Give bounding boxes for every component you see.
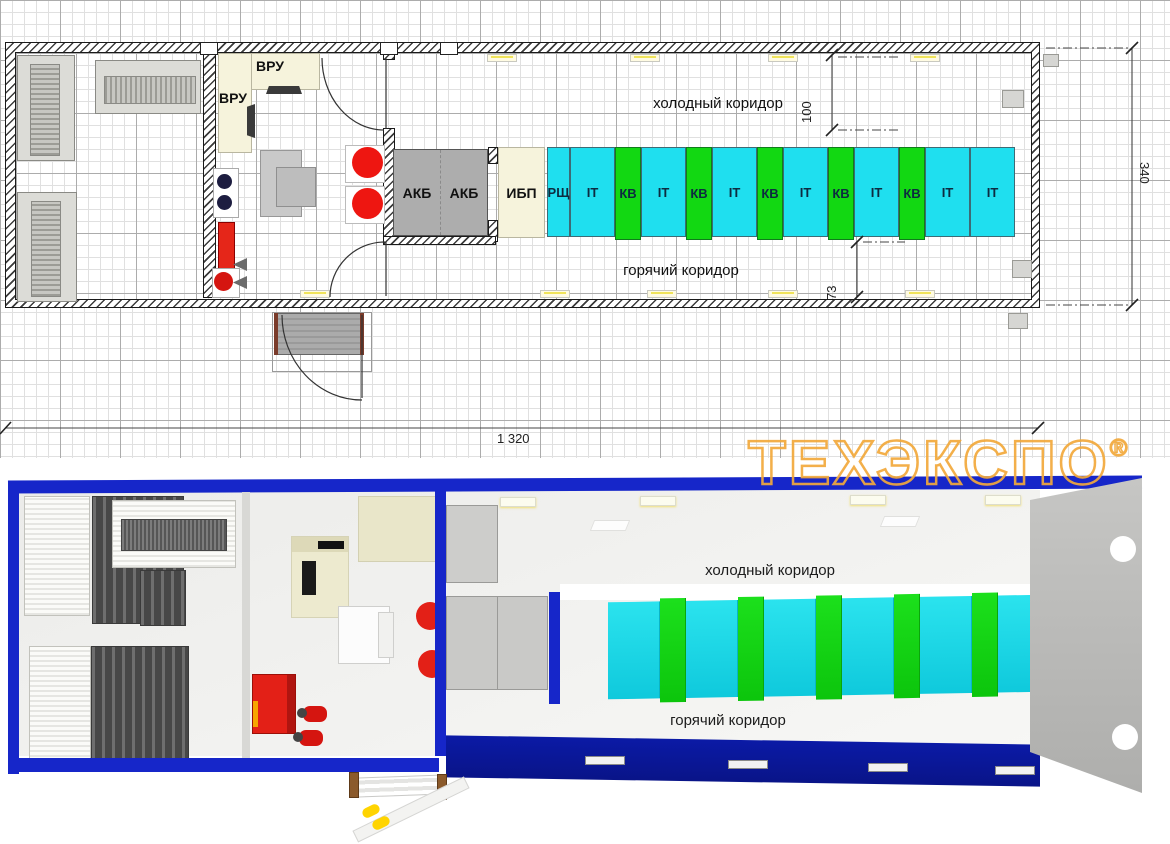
rack-3d-5-it xyxy=(764,599,816,697)
rack-3d-1-it xyxy=(608,601,660,699)
rack-3d-9-it xyxy=(920,596,972,694)
rack-3d-2-cooling xyxy=(660,598,686,702)
container-left-wall xyxy=(8,488,19,774)
ceiling-light-3d xyxy=(640,496,676,506)
registered-mark: ® xyxy=(1110,435,1128,462)
watermark-text: ТЕХЭКСПО xyxy=(748,429,1110,498)
rack-3d-7-it xyxy=(842,597,894,695)
door-arc-hall xyxy=(322,58,384,130)
floor-edge-left xyxy=(19,758,439,772)
ceiling-vent-3d xyxy=(880,516,920,527)
server-rack-3d-3 xyxy=(91,646,189,764)
floor-sill xyxy=(728,760,768,769)
end-wall-porthole-1 xyxy=(1110,536,1136,562)
plan-linework xyxy=(0,0,1170,460)
akb-divider xyxy=(497,597,498,689)
cold-corridor-label-3d: холодный коридор xyxy=(690,562,850,579)
floor-sill xyxy=(868,763,908,772)
end-wall-porthole-2 xyxy=(1112,724,1138,750)
techexpo-watermark: ТЕХЭКСПО® xyxy=(748,428,1127,499)
desk-side-3d xyxy=(378,612,394,658)
door-panel-3d xyxy=(446,505,498,583)
vru-door-slot xyxy=(302,561,316,595)
hot-corridor-label-3d: горячий коридор xyxy=(648,712,808,729)
fire-cabinet-3d xyxy=(252,674,296,734)
extinguisher-cone-2 xyxy=(293,732,303,742)
door-arc-room xyxy=(330,242,385,297)
rack-3d-3-it xyxy=(686,600,738,698)
fire-cabinet-side xyxy=(287,675,295,733)
datacenter-drawing: ВРУ ВРУ АКБ АКБ ИБП РЩITКВITКВITКВITКВIT… xyxy=(0,0,1170,844)
vru-vent-slot xyxy=(318,541,344,549)
rack-3d-10-cooling xyxy=(972,593,998,697)
end-wall-3d xyxy=(1030,478,1142,793)
wall-left-mid-3d xyxy=(242,492,250,758)
cooling-unit-3d-2 xyxy=(29,646,91,768)
ac-grille xyxy=(121,519,227,551)
floor-sill xyxy=(585,756,625,765)
ac-unit-3d xyxy=(112,500,236,568)
floor-sill xyxy=(995,766,1035,775)
ceiling-light-3d xyxy=(500,497,536,507)
extinguisher-cone-1 xyxy=(297,708,307,718)
rack-3d-6-cooling xyxy=(816,595,842,699)
divider-wall-3d xyxy=(435,490,446,756)
server-rack-3d-2 xyxy=(140,570,186,626)
ceiling-vent-3d xyxy=(590,520,630,531)
door-arc-entrance xyxy=(282,315,362,400)
akb-3d xyxy=(446,596,548,690)
rack-row-3d xyxy=(608,594,1102,704)
divider-stub-3d xyxy=(549,592,560,704)
vru-panel-3d xyxy=(358,496,438,562)
rack-3d-8-cooling xyxy=(894,594,920,698)
cooling-unit-3d-1 xyxy=(24,496,90,616)
rack-3d-4-cooling xyxy=(738,597,764,701)
ramp-post-left xyxy=(349,772,359,798)
fire-cabinet-handle xyxy=(253,701,258,727)
